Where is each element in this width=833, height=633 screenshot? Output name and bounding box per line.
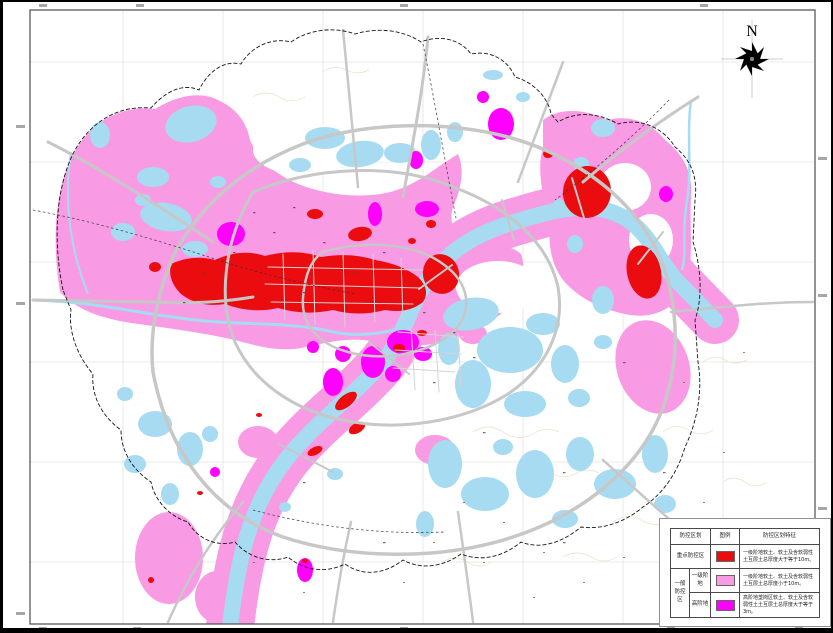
legend-header-zone: 防控区划 — [671, 529, 711, 545]
legend-subzone-high-terrace: 高阶地 — [690, 593, 711, 617]
legend-zone-general-group: 一般防控区 — [671, 569, 690, 617]
map-sheet: N 防控区划 图例 防控区划特征 重点防控区 一级阶地软土、软土及含软弱性土互层… — [0, 0, 833, 633]
north-arrow: N — [721, 20, 783, 98]
legend-zone-key: 重点防控区 — [671, 545, 711, 569]
legend-header-feature: 防控区划特征 — [740, 529, 819, 545]
legend-table: 防控区划 图例 防控区划特征 重点防控区 一级阶地软土、软土及含软弱性土互层土总… — [670, 528, 820, 618]
legend-swatch-cell — [711, 545, 740, 569]
legend-swatch-red — [716, 551, 735, 562]
legend-header-symbol: 图例 — [711, 529, 740, 545]
legend-swatch-pink — [716, 575, 735, 586]
legend-feature-key: 一级阶地软土、软土及含软弱性土互层土总厚度大于等于10m。 — [740, 545, 819, 569]
legend-swatch-cell — [711, 593, 740, 617]
legend-subzone-first-terrace: 一级阶地 — [690, 569, 711, 593]
north-label: N — [746, 23, 758, 40]
legend-box: 防控区划 图例 防控区划特征 重点防控区 一级阶地软土、软土及含软弱性土互层土总… — [659, 518, 831, 627]
compass-rose-icon — [735, 42, 769, 76]
legend-feature-first-terrace: 一级阶地软土、软土及含软弱性土互层土总厚度小于10m。 — [740, 569, 819, 593]
legend-feature-high-terrace: 高阶地垄岗区软土、软土及含软弱性土土互层土总厚度大于等于3m。 — [740, 593, 819, 617]
legend-swatch-cell — [711, 569, 740, 593]
legend-swatch-magenta — [716, 600, 735, 611]
